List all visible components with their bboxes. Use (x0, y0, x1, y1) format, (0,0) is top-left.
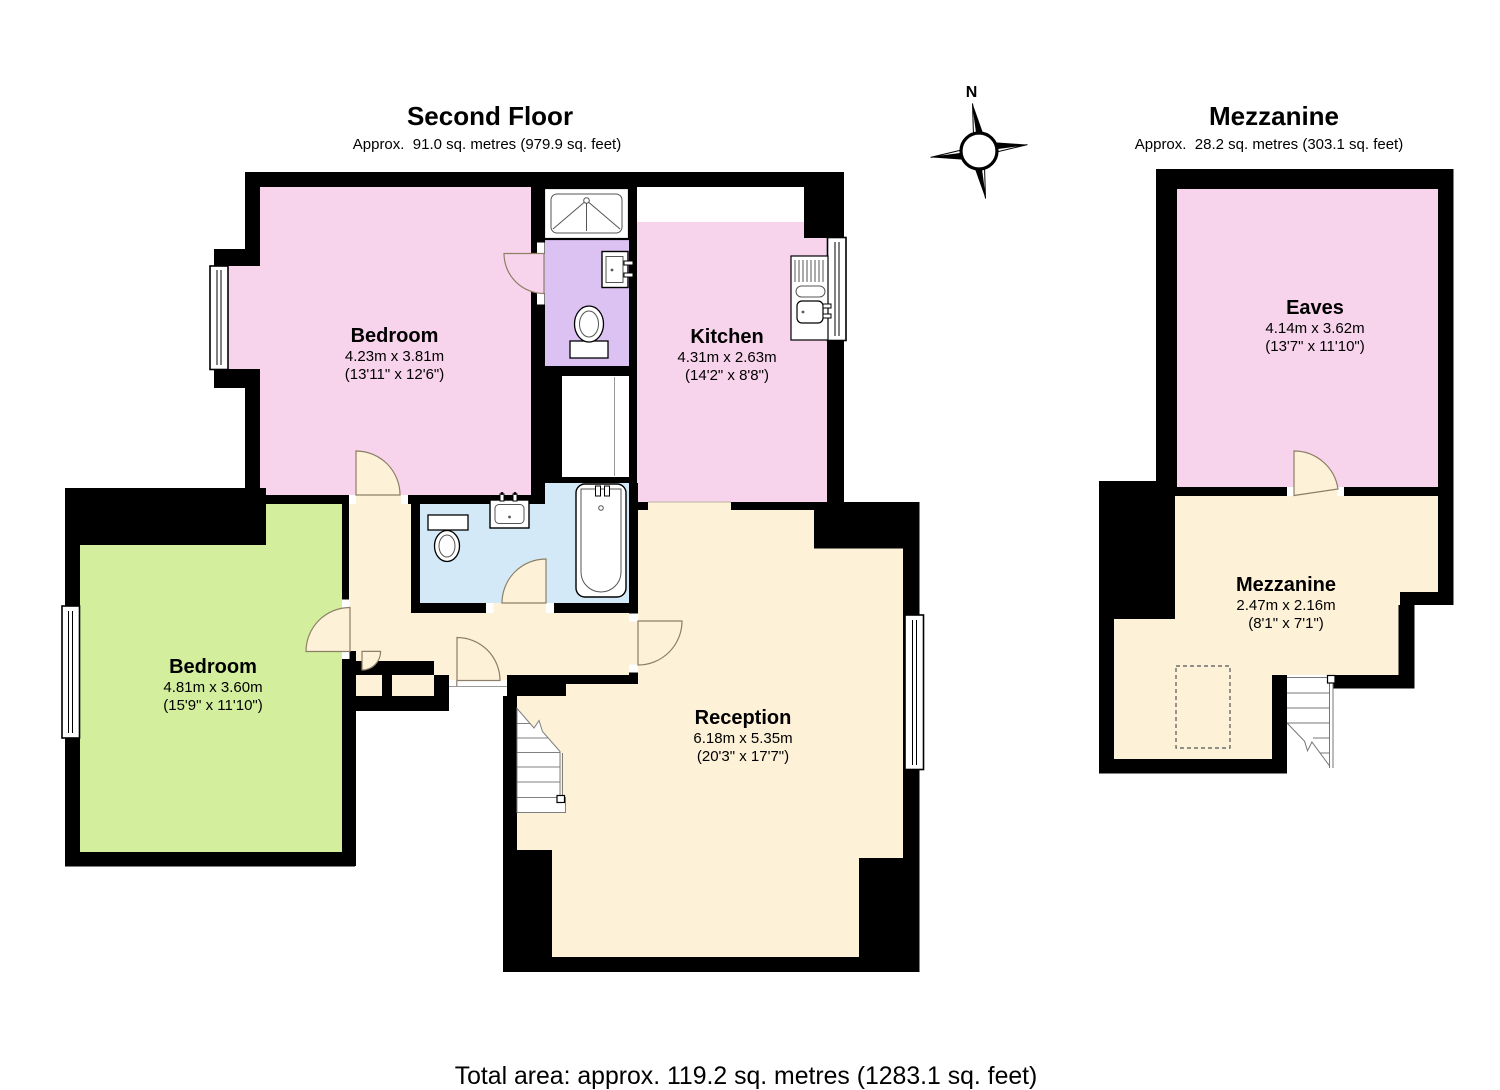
svg-text:Mezzanine: Mezzanine (1209, 101, 1339, 131)
svg-text:Approx. 28.2 sq. metres (303.: Approx. 28.2 sq. metres (303.1 sq. feet) (1135, 136, 1403, 153)
svg-text:Bedroom: Bedroom (169, 656, 257, 678)
svg-text:(8'1" x 7'1"): (8'1" x 7'1") (1248, 615, 1324, 632)
svg-text:4.81m x 3.60m: 4.81m x 3.60m (163, 679, 262, 696)
svg-text:Kitchen: Kitchen (690, 326, 763, 348)
svg-text:4.23m x 3.81m: 4.23m x 3.81m (345, 348, 444, 365)
svg-text:(13'7" x 11'10"): (13'7" x 11'10") (1265, 338, 1365, 355)
svg-text:Mezzanine: Mezzanine (1236, 574, 1336, 596)
svg-text:(15'9" x 11'10"): (15'9" x 11'10") (163, 697, 263, 714)
svg-text:4.31m x 2.63m: 4.31m x 2.63m (677, 349, 776, 366)
svg-text:Eaves: Eaves (1286, 297, 1344, 319)
svg-text:N: N (966, 84, 978, 101)
svg-text:4.14m x 3.62m: 4.14m x 3.62m (1265, 320, 1364, 337)
svg-text:Reception: Reception (695, 707, 792, 729)
svg-text:Approx. 91.0 sq. metres (979.: Approx. 91.0 sq. metres (979.9 sq. feet) (353, 136, 621, 153)
svg-text:Total area: approx. 119.2 sq.: Total area: approx. 119.2 sq. metres (12… (455, 1063, 1038, 1090)
svg-text:(14'2" x 8'8"): (14'2" x 8'8") (685, 367, 769, 384)
svg-text:Second Floor: Second Floor (407, 101, 573, 131)
svg-text:2.47m x 2.16m: 2.47m x 2.16m (1236, 597, 1335, 614)
svg-text:Bedroom: Bedroom (351, 325, 439, 347)
svg-text:(13'11" x 12'6"): (13'11" x 12'6") (345, 366, 445, 383)
svg-text:(20'3" x 17'7"): (20'3" x 17'7") (697, 748, 789, 765)
svg-text:6.18m x 5.35m: 6.18m x 5.35m (693, 730, 792, 747)
